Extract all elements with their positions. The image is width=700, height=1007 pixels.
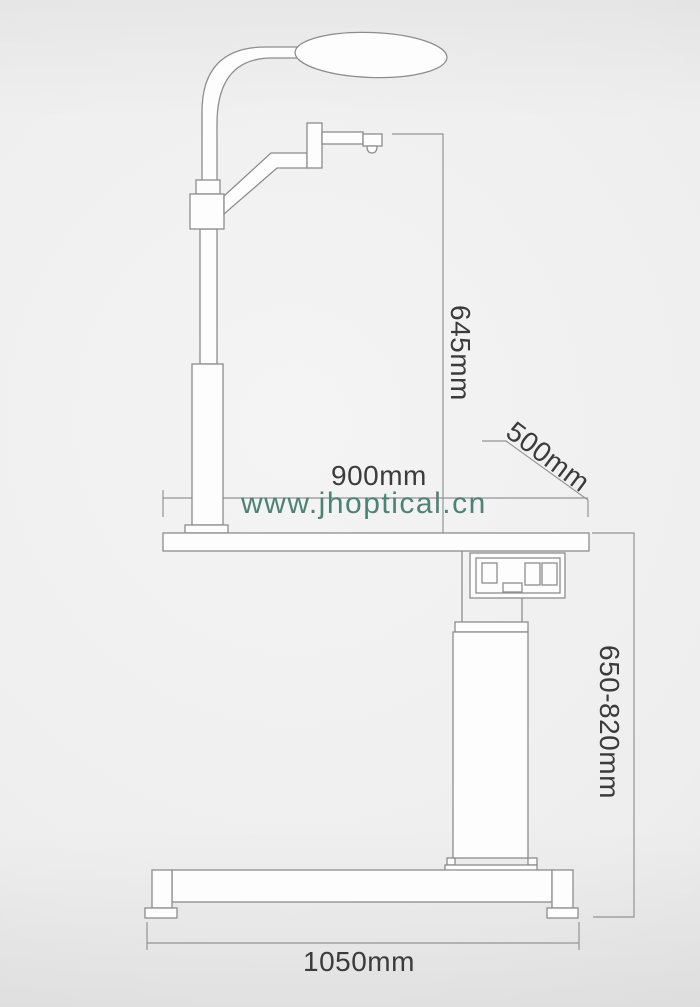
rod-tip-chuck xyxy=(363,134,382,146)
dim-label-650-820mm: 650-820mm xyxy=(595,645,623,799)
base-endcap-right xyxy=(552,870,573,908)
clamp-block xyxy=(190,194,224,229)
lift-column xyxy=(453,632,528,858)
panel-switch-3 xyxy=(542,563,557,585)
panel-button xyxy=(503,583,522,592)
column-ear-right xyxy=(528,858,537,865)
pole-base-flange xyxy=(185,525,228,533)
horizontal-rod xyxy=(322,132,363,144)
ophthalmic-table-diagram: 645mm 500mm 900mm 650-820mm 1050mm www.j… xyxy=(0,0,700,1007)
base-endcap-left xyxy=(152,870,172,908)
dim-label-1050mm: 1050mm xyxy=(303,948,415,976)
pole-upper-section xyxy=(200,229,217,364)
table-top xyxy=(163,533,589,551)
lamp-assembly xyxy=(185,30,448,533)
pole-collar xyxy=(196,180,220,194)
dim-label-900mm: 900mm xyxy=(331,462,427,490)
swing-arm xyxy=(224,153,307,214)
panel-switch-1 xyxy=(482,563,497,583)
lamp-head xyxy=(294,30,447,80)
base-rail xyxy=(172,870,552,902)
column-top-cap xyxy=(455,622,528,632)
watermark-text: www.jhoptical.cn xyxy=(241,489,487,519)
column-ear-left xyxy=(447,858,455,865)
base-foot-left xyxy=(145,908,177,918)
base-foot-right xyxy=(547,908,578,918)
arm-end-post xyxy=(307,123,322,168)
dim-label-645mm: 645mm xyxy=(446,305,474,401)
panel-switch-2 xyxy=(525,563,540,585)
rod-knob xyxy=(367,146,377,153)
pole-lower-tube xyxy=(192,364,223,525)
lift-column-assembly xyxy=(445,551,565,872)
floor-base xyxy=(145,870,578,918)
rod-arm-assembly xyxy=(224,123,382,214)
